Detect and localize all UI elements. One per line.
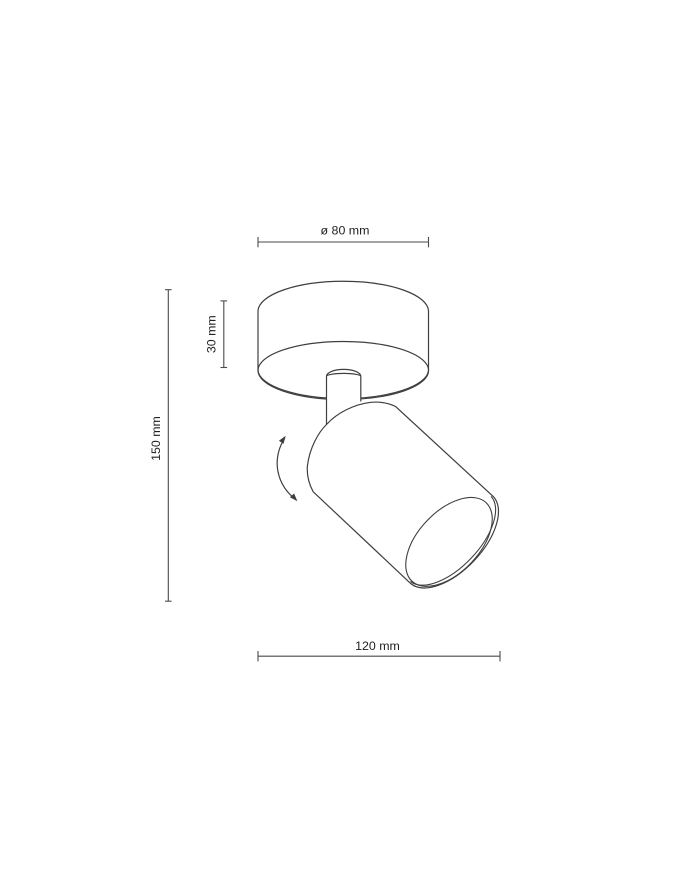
svg-text:120 mm: 120 mm [355,639,400,653]
svg-text:ø 80 mm: ø 80 mm [321,224,370,238]
svg-text:30 mm: 30 mm [205,315,219,353]
svg-text:150 mm: 150 mm [149,416,163,461]
